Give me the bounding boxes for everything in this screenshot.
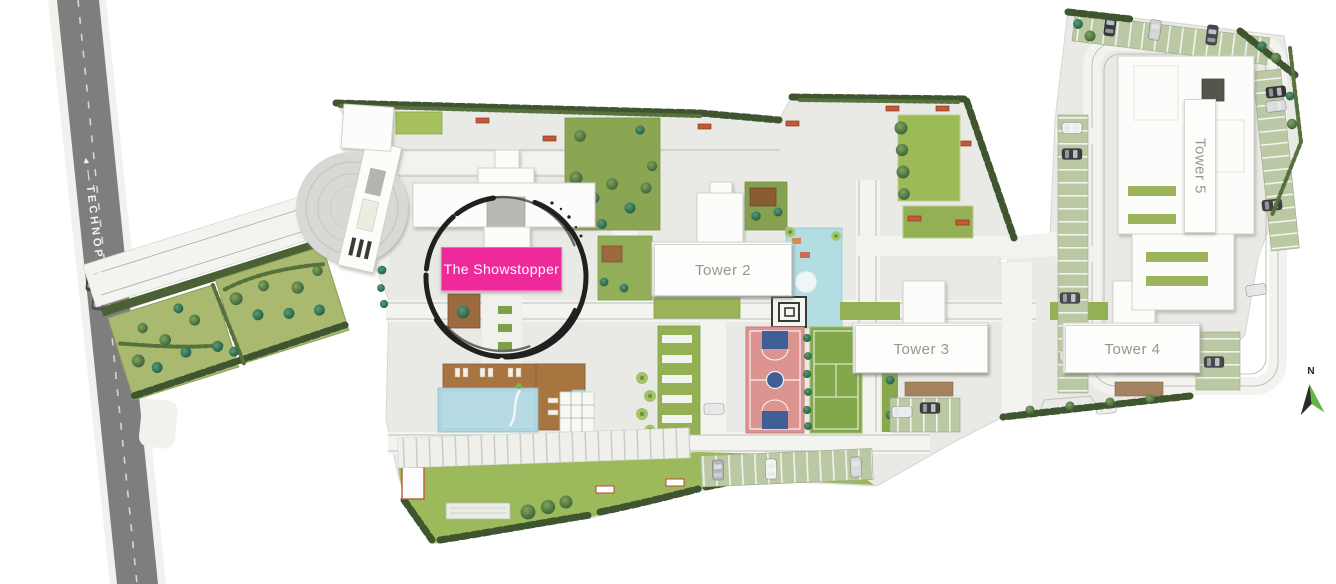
north-label: N [1296,366,1326,377]
gate-kiosk [402,467,424,499]
site-plan: ◄ ┄┄ TECHNOPOLIS The Showstopper Tower 2… [0,0,1336,584]
maze-feature [772,297,806,327]
planter-garden [658,326,700,434]
road-direction-arrow-icon: ◄ [81,155,92,165]
tower5-label[interactable]: Tower 5 [1184,99,1216,233]
road-junction [138,398,179,450]
top-lawn [396,112,442,134]
tower3-label[interactable]: Tower 3 [855,325,988,373]
pergola [560,392,594,432]
road-dashes: ┄┄ [82,169,94,181]
basketball-court [746,327,804,433]
tower2-label[interactable]: Tower 2 [654,244,792,296]
long-bench [446,503,510,519]
showstopper-label[interactable]: The Showstopper [441,247,562,291]
north-arrow-icon [1298,383,1325,415]
corner-building [341,104,394,151]
tower4-label[interactable]: Tower 4 [1065,325,1200,373]
